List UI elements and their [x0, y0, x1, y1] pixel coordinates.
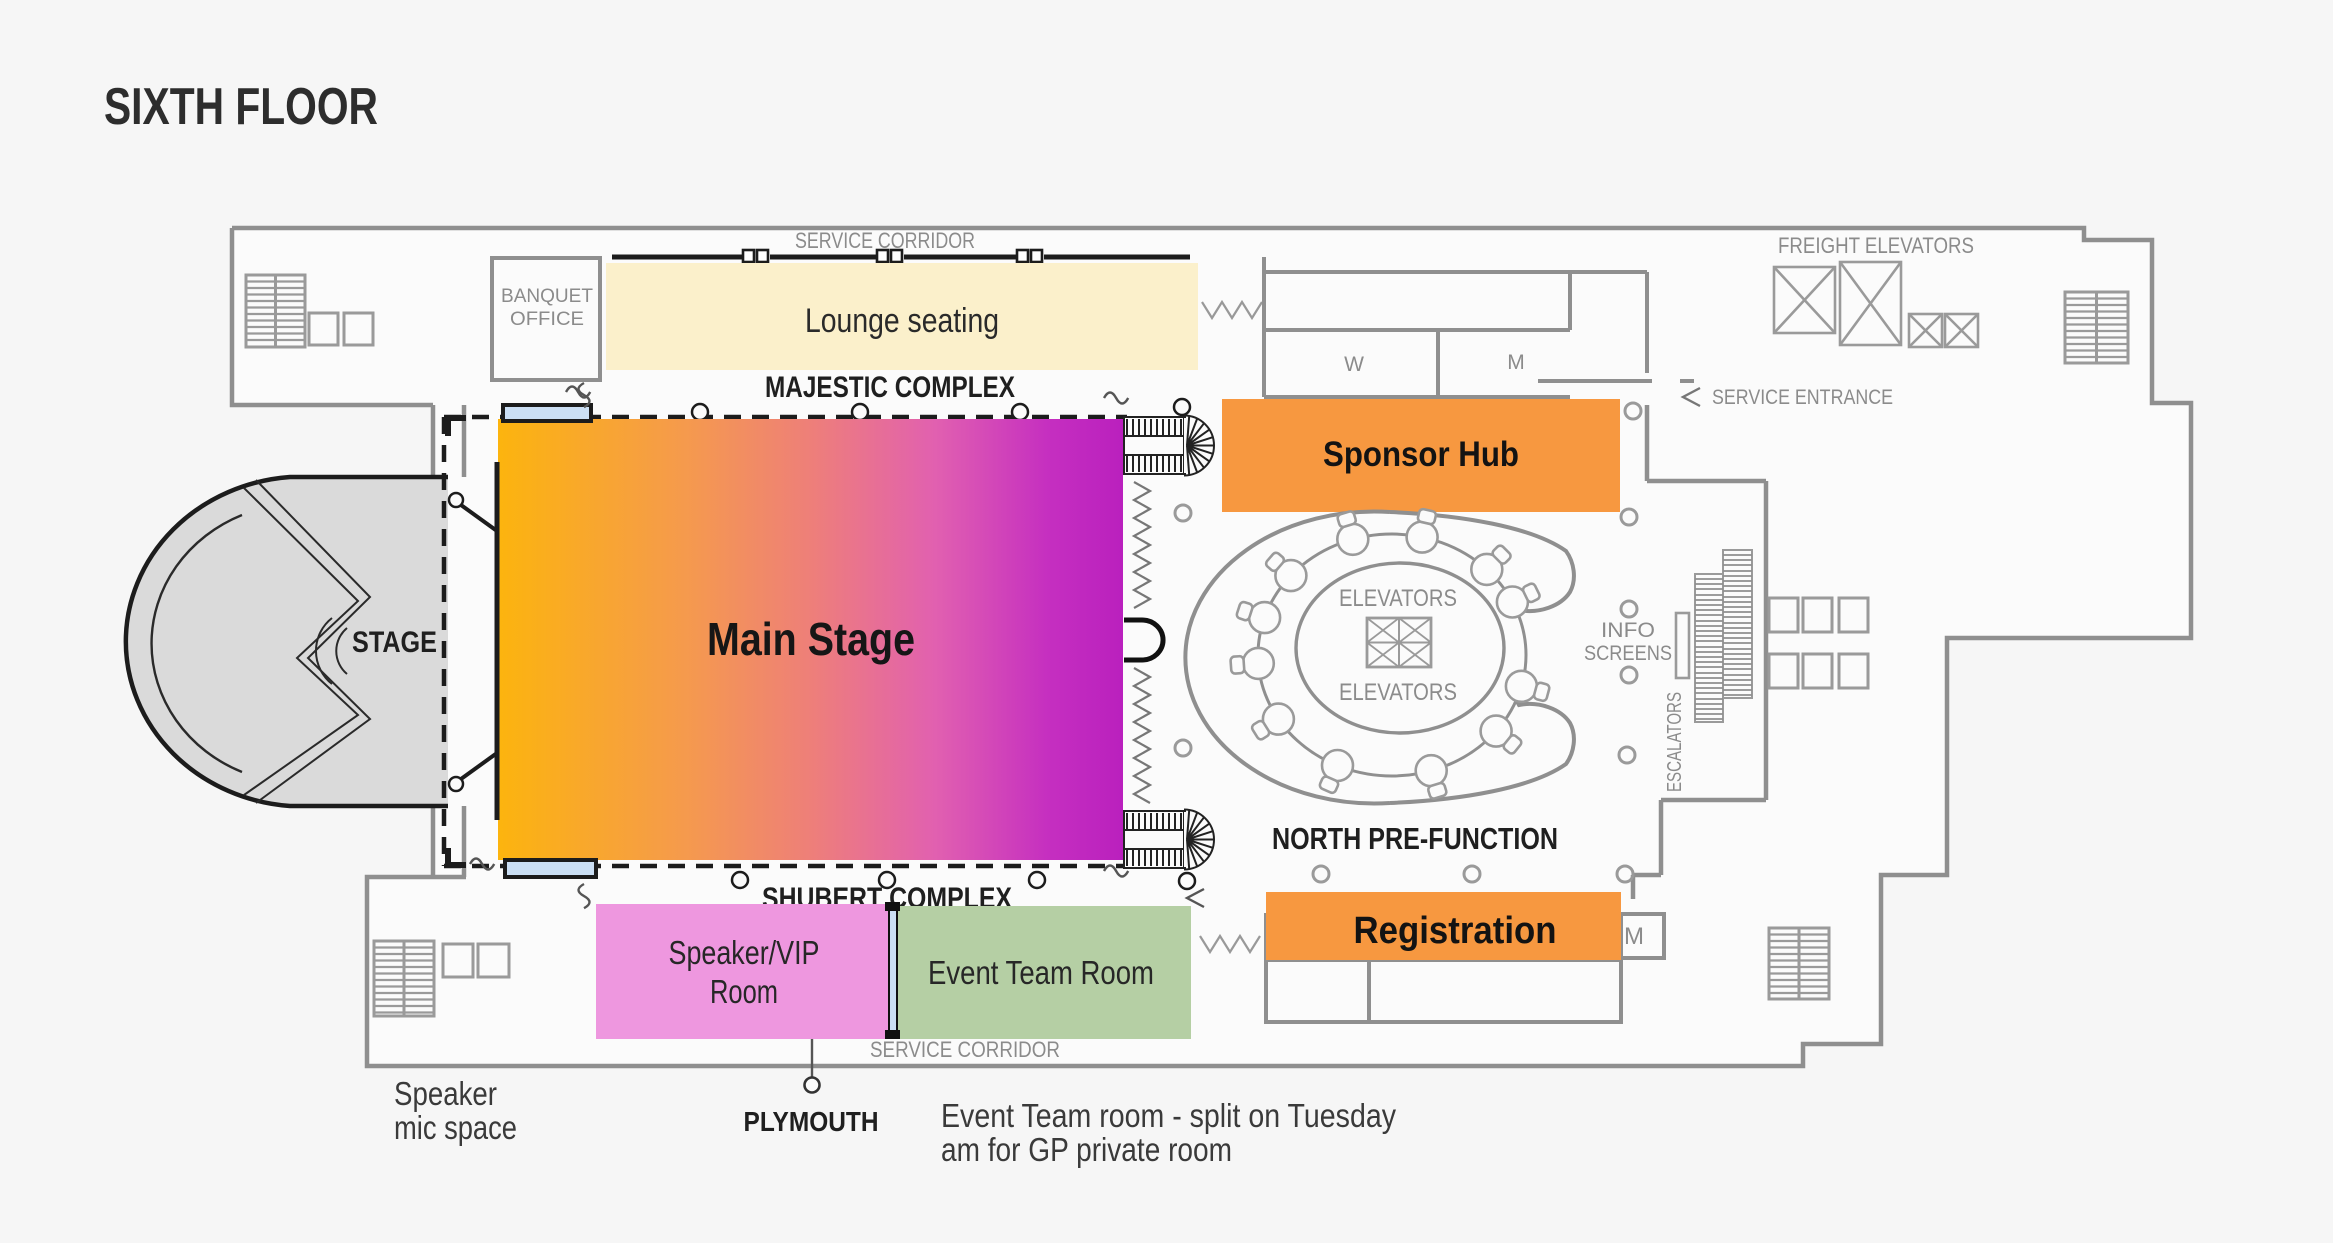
svg-text:Sponsor Hub: Sponsor Hub	[1323, 435, 1519, 474]
svg-text:W: W	[1344, 353, 1364, 376]
svg-text:M: M	[1507, 351, 1525, 374]
svg-text:INFO: INFO	[1601, 619, 1655, 642]
svg-text:Speaker: Speaker	[394, 1075, 497, 1112]
svg-text:Event Team Room: Event Team Room	[928, 954, 1154, 991]
svg-text:SERVICE CORRIDOR: SERVICE CORRIDOR	[870, 1037, 1060, 1062]
svg-text:ELEVATORS: ELEVATORS	[1339, 585, 1457, 612]
svg-text:FREIGHT ELEVATORS: FREIGHT ELEVATORS	[1778, 233, 1974, 258]
svg-text:MAJESTIC COMPLEX: MAJESTIC COMPLEX	[765, 371, 1015, 404]
svg-text:Registration: Registration	[1354, 910, 1557, 952]
svg-text:Speaker/VIP: Speaker/VIP	[669, 934, 820, 971]
svg-text:Lounge seating: Lounge seating	[805, 302, 999, 340]
svg-text:SIXTH FLOOR: SIXTH FLOOR	[104, 78, 378, 136]
svg-text:Event Team room - split on Tue: Event Team room - split on Tuesday	[941, 1097, 1396, 1134]
svg-text:OFFICE: OFFICE	[510, 309, 584, 330]
svg-text:mic space: mic space	[394, 1109, 517, 1146]
svg-text:Room: Room	[710, 973, 778, 1010]
svg-text:STAGE: STAGE	[352, 626, 437, 659]
svg-text:BANQUET: BANQUET	[501, 286, 593, 307]
svg-text:NORTH PRE-FUNCTION: NORTH PRE-FUNCTION	[1272, 821, 1558, 856]
svg-text:Main Stage: Main Stage	[707, 613, 915, 665]
svg-text:am for GP private room: am for GP private room	[941, 1131, 1232, 1168]
svg-text:M: M	[1624, 923, 1644, 950]
svg-text:ESCALATORS: ESCALATORS	[1664, 692, 1686, 792]
svg-text:PLYMOUTH: PLYMOUTH	[744, 1106, 879, 1137]
svg-text:SERVICE ENTRANCE: SERVICE ENTRANCE	[1712, 386, 1893, 409]
svg-text:SCREENS: SCREENS	[1584, 642, 1672, 665]
svg-text:ELEVATORS: ELEVATORS	[1339, 679, 1457, 706]
